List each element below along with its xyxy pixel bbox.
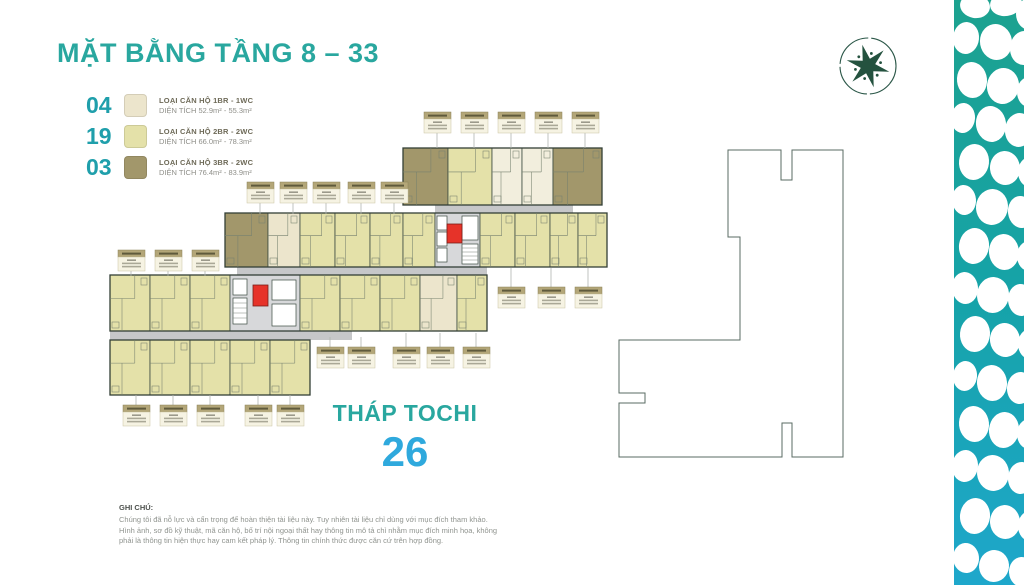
wing-top (403, 148, 602, 205)
legend-type-label: LOẠI CĂN HỘ 1BR - 1WC (159, 96, 253, 105)
legend-count: 04 (86, 94, 118, 117)
legend-count: 03 (86, 156, 118, 179)
note-line: Hình ảnh, sơ đồ kỹ thuật, mã căn hộ, bố … (119, 526, 497, 537)
wing-third (110, 275, 487, 331)
wing-middle (225, 213, 607, 267)
keyplan-tower-outline (619, 150, 843, 457)
tower-name: THÁP TOCHI (300, 400, 510, 427)
tower-floor-number: 26 (300, 431, 510, 473)
note-line: Chúng tôi đã nỗ lực và cẩn trọng để hoàn… (119, 515, 497, 526)
notes-heading: GHI CHÚ: (119, 503, 497, 512)
wing-bottom (110, 340, 310, 395)
legend-swatch-1br (124, 94, 147, 117)
pebble-pattern-decoration (950, 0, 1024, 585)
legend-item-3br: 03 LOẠI CĂN HỘ 3BR - 2WC DIỆN TÍCH 76.4m… (86, 154, 253, 181)
tower-label-block: THÁP TOCHI 26 (300, 400, 510, 473)
legend-area-label: DIỆN TÍCH 66.0m² - 78.3m² (159, 137, 253, 146)
legend-swatch-2br (124, 125, 147, 148)
note-line: phải là thông tin hiện thực hay cam kết … (119, 536, 497, 547)
notes-block: GHI CHÚ: Chúng tôi đã nỗ lực và cẩn trọn… (119, 503, 497, 547)
legend-area-label: DIỆN TÍCH 76.4m² - 83.9m² (159, 168, 253, 177)
legend-item-1br: 04 LOẠI CĂN HỘ 1BR - 1WC DIỆN TÍCH 52.9m… (86, 92, 253, 119)
elevator-marker (253, 285, 268, 306)
page-title: MẶT BẰNG TẦNG 8 – 33 (57, 38, 379, 69)
legend-type-label: LOẠI CĂN HỘ 3BR - 2WC (159, 158, 253, 167)
compass-rose-icon (840, 38, 896, 94)
legend-item-2br: 19 LOẠI CĂN HỘ 2BR - 2WC DIỆN TÍCH 66.0m… (86, 123, 253, 150)
legend-type-label: LOẠI CĂN HỘ 2BR - 2WC (159, 127, 253, 136)
floorplan-canvas (0, 0, 1024, 585)
elevator-marker (447, 224, 462, 243)
legend-count: 19 (86, 125, 118, 148)
legend-swatch-3br (124, 156, 147, 179)
legend: 04 LOẠI CĂN HỘ 1BR - 1WC DIỆN TÍCH 52.9m… (86, 92, 253, 181)
legend-area-label: DIỆN TÍCH 52.9m² - 55.3m² (159, 106, 253, 115)
